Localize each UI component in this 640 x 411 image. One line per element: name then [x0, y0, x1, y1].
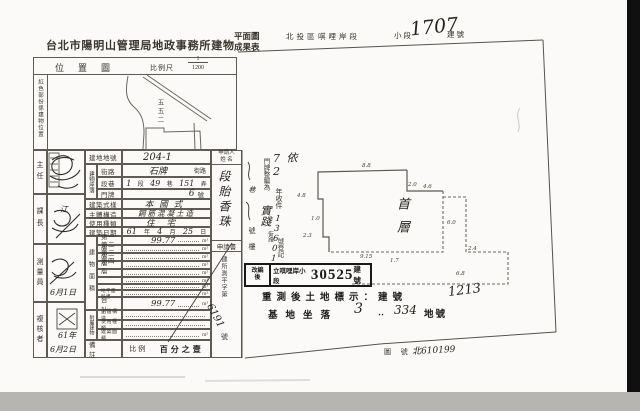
floor-value-cell-5: m²: [122, 277, 211, 284]
remarks-label: 備註: [89, 339, 118, 359]
style-label-cell: 建築式樣: [85, 199, 122, 209]
approval-role-cell-chief: 課長: [33, 194, 47, 244]
map-number-value: 北610199: [412, 342, 456, 357]
annex-group-label: 附屬建物: [88, 315, 95, 335]
build-date-year-unit: 年: [144, 227, 150, 236]
floor-unit-4: m²: [202, 270, 208, 276]
lot-no-value-cell: 204-1: [122, 150, 211, 164]
plan-dim-step1: 2.0: [408, 182, 417, 188]
style-label: 建築式樣: [89, 199, 117, 209]
street-value-cell: 石牌 街路: [122, 164, 211, 177]
applicant-header-line2: 姓 名: [211, 157, 242, 164]
annex-group-cell: 附屬建物: [85, 310, 97, 340]
stamp-left-line2: 後: [254, 275, 260, 282]
leader-dots: [126, 313, 205, 317]
annotation-renumber-label: 門牌整編為: [260, 158, 270, 206]
approval-sign-cell-2: [47, 194, 85, 244]
leader-dots: [126, 279, 199, 282]
section-label: 唭哩岸段: [318, 31, 360, 42]
scanned-document-page: { "header": { "office_title": "台北市陽明山管理局…: [0, 0, 640, 411]
applicant-header-cell: 申請人 姓 名: [211, 150, 242, 165]
floor-value-cell-7: m²: [122, 290, 211, 297]
remarks-scale-prefix: 比例: [129, 344, 147, 354]
approval-sign-cell-1: [47, 150, 85, 194]
leader-dots: [178, 300, 199, 306]
lane-label-cell: 段巷: [97, 177, 122, 189]
document-title: 台北市陽明山管理局地政事務所建物: [46, 37, 235, 53]
build-date-day-unit: 日: [200, 227, 206, 236]
application-doc-prefix: 建所測平字第: [219, 256, 228, 300]
floor-unit-5: m²: [202, 278, 208, 284]
floor-label-cell-5: [97, 277, 122, 284]
floor-value-cell-2: m²: [122, 253, 211, 261]
remarks-value-cell: 比例 百分之壹: [122, 340, 211, 358]
approval-role-cell-director: 主任: [33, 150, 47, 194]
annex-value-cell-1: [122, 320, 211, 329]
street-label-cell: 街路: [97, 164, 122, 177]
location-group-cell: 建物座落: [85, 164, 97, 199]
approval-date-4-md: 6月2日: [50, 344, 76, 355]
annotation-address-floor: 樓: [247, 243, 257, 255]
approval-role-director: 主任: [35, 161, 45, 183]
floor-unit-3: m²: [202, 262, 208, 268]
plan-dim-bottom2: 1.7: [390, 258, 399, 264]
annotation-registration-mid: 年收件: [274, 188, 284, 216]
annex-value-cell-0: [122, 310, 211, 320]
build-date-year: 61: [127, 227, 137, 236]
plan-dim-left2: 1.0: [311, 216, 320, 222]
area-group-cell: 建物面積: [85, 236, 97, 310]
approval-role-cell-reviewer: 複核者: [33, 302, 47, 358]
renumber-stamp: 改編 後 立唭哩岸小段 30525 建號: [244, 263, 372, 287]
leader-dots: [126, 255, 199, 258]
leader-dots: [126, 286, 199, 288]
lane-value-cell: 1 段 49 巷 151 弄: [122, 177, 211, 189]
floor-unit-7: m²: [202, 291, 208, 297]
floor-value-cell-4: m²: [122, 269, 211, 277]
lot-no-label-cell: 建地地號: [85, 150, 122, 164]
applicant-name: 段貽香珠: [216, 170, 233, 240]
lane-unit-2: 巷: [167, 179, 173, 188]
scanner-black-edge: [627, 0, 640, 392]
use-value-cell: 住宅: [122, 218, 211, 227]
district-label: 北投區: [286, 31, 318, 42]
floor-label-cell-3: 第四層: [97, 261, 122, 269]
floor-value-cell-1: m²: [122, 245, 211, 253]
leader-dots: [126, 247, 199, 250]
street-label: 街路: [101, 166, 115, 176]
leader-dots: [126, 271, 199, 274]
stamp-number: 30525: [311, 267, 354, 284]
floor-unit-0: m²: [202, 238, 208, 244]
floor-value-cell-8: 99.77m²: [122, 297, 211, 310]
renumber-stamp-left-cell: 改編 後: [246, 265, 271, 285]
door-label: 門牌: [101, 189, 115, 199]
stamp-left-line1: 改編: [251, 268, 263, 275]
map-scale-denominator: 1200: [188, 65, 208, 71]
resurvey-building-no: 1213: [447, 281, 482, 300]
annotation-address-lane: 巷: [247, 186, 257, 198]
lot-no-value: 204-1: [143, 152, 172, 163]
leader-dots: [178, 239, 199, 243]
plan-dim-top: 8.8: [362, 163, 371, 169]
site-lot-no2: 334: [394, 303, 417, 317]
floor-value-8: 99.77: [151, 299, 175, 309]
street-value: 石牌: [149, 164, 167, 177]
plan-dim-right: 6.0: [447, 220, 456, 226]
annex-value-cell-2: m²: [122, 329, 211, 340]
remarks-label-cell: 備註: [85, 340, 122, 358]
approval-role-cell-surveyor: 測量員: [33, 244, 47, 302]
application-doc-unit: 號: [221, 332, 228, 342]
street-unit: 街路: [194, 166, 206, 175]
lot-no-label: 建地地號: [89, 152, 117, 162]
approval-date-4-year: 61年: [58, 330, 76, 341]
door-value: 6: [189, 189, 195, 199]
plan-dim-bottom1: 9.15: [360, 254, 372, 260]
floor-value-cell-0: 99.77m²: [122, 236, 211, 245]
annotation-renumber-street: 實踐: [257, 205, 273, 233]
leader-dots: [126, 263, 199, 266]
map-side-note: 紅色部份係建物位置: [36, 79, 44, 147]
scanner-gray-edge: [0, 392, 640, 411]
annotation-address-no: 號: [247, 227, 257, 239]
remarks-scale-text: 百分之壹: [160, 344, 204, 355]
leader-dots: [126, 323, 205, 327]
map-lot-label: 五五二: [154, 99, 164, 131]
site-line-text: 基地坐落: [268, 307, 338, 321]
lane-unit-1: 段: [138, 179, 144, 188]
leader-dots: [126, 332, 199, 337]
floor-label-cell-4: [97, 269, 122, 277]
application-doc-label: 申請書: [217, 241, 237, 251]
approval-role-chief: 課長: [35, 207, 45, 231]
lane-value-1: 1: [126, 179, 131, 188]
floor-unit-1: m²: [202, 246, 208, 252]
approval-role-reviewer: 複核者: [35, 315, 45, 345]
leader-dots: [126, 292, 199, 295]
plan-dim-step2: 4.6: [423, 184, 432, 190]
build-date-day: 25: [183, 227, 193, 236]
location-map-title: 位置圖: [55, 61, 124, 74]
title-stack-bottom: 成果表: [234, 41, 260, 53]
location-group-label: 建物座落: [87, 171, 95, 193]
application-doc-cell: 申請書: [211, 240, 242, 252]
renumber-stamp-body: 立唭哩岸小段 30525 建號: [271, 265, 370, 285]
annotation-registration-hw: 依72: [270, 152, 299, 188]
map-scale-label: 比例尺: [150, 63, 174, 73]
floor-value-0: 99.77: [151, 236, 175, 246]
resurvey-line-text: 重測後土地標示：建號: [262, 289, 407, 303]
plan-dim-left3: 2.3: [303, 233, 312, 239]
door-label-cell: 門牌: [97, 189, 122, 199]
stamp-unit: 建號: [353, 264, 368, 286]
stamp-body-prefix: 立唭哩岸小段: [273, 265, 311, 285]
floor-plan-outline: [318, 170, 443, 252]
door-unit: 號: [198, 189, 205, 199]
site-lot-no1: 3: [354, 301, 363, 317]
approval-date-3: 6月1日: [50, 287, 76, 298]
approval-sign2-char: 江: [60, 204, 68, 215]
plan-dim-ext2: 6.8: [456, 271, 465, 277]
lane-value-2: 49: [150, 179, 160, 188]
site-dots: ‥: [378, 307, 384, 318]
plan-floor-label: 首層: [392, 197, 411, 249]
area-group-label: 建物面積: [87, 249, 96, 297]
site-lot-unit: 地號: [424, 306, 447, 320]
applicant-header-line1: 申請人: [211, 150, 242, 157]
lane-label: 段巷: [101, 178, 115, 188]
map-scale-numerator: 1: [188, 56, 208, 63]
map-number-label: 圖 號: [384, 347, 412, 357]
building-number-unit: 建號: [447, 29, 466, 40]
lane-unit-3: 弄: [201, 179, 207, 188]
approval-role-surveyor: 測量員: [35, 258, 45, 288]
lane-value-3: 151: [179, 179, 194, 188]
pl an-dim-ext1: 2.4: [468, 246, 477, 252]
annotation-registration-suffix: 號登記: [274, 238, 284, 266]
annex-unit-2: m²: [202, 332, 208, 338]
annotation-registration-no: 13601: [271, 214, 284, 241]
floor-unit-2: m²: [202, 254, 208, 260]
floor-value-cell-3: m²: [122, 261, 211, 269]
plan-dim-left1: 4.8: [297, 193, 306, 199]
